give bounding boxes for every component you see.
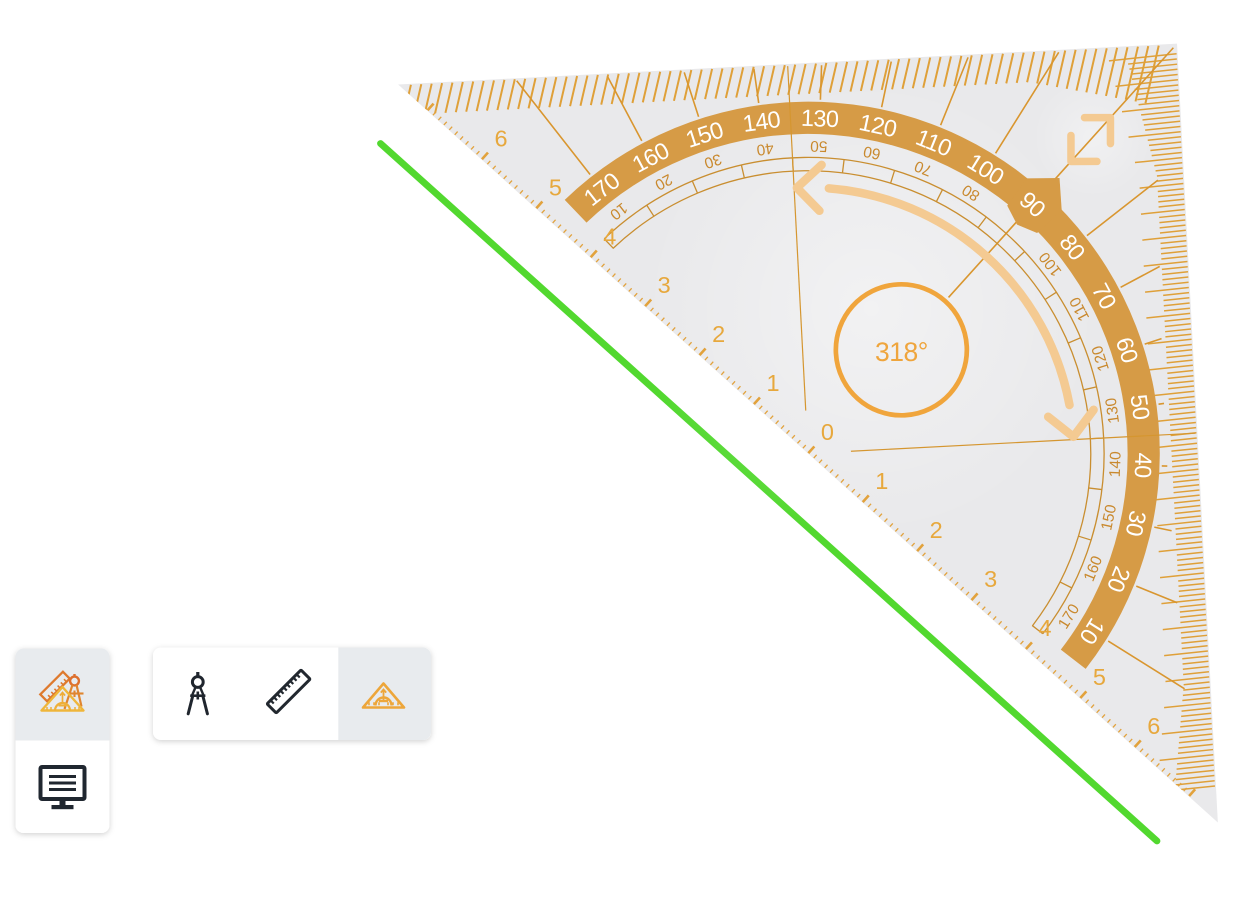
svg-text:2: 2 xyxy=(712,321,725,347)
svg-text:6: 6 xyxy=(1147,713,1160,739)
svg-text:0: 0 xyxy=(821,419,834,445)
svg-text:140: 140 xyxy=(741,106,782,137)
svg-text:3: 3 xyxy=(658,272,671,298)
svg-text:50: 50 xyxy=(1125,393,1154,422)
svg-text:4: 4 xyxy=(1038,615,1051,641)
svg-text:140: 140 xyxy=(1107,451,1125,478)
svg-text:1: 1 xyxy=(875,468,888,494)
svg-text:4: 4 xyxy=(603,223,616,249)
svg-text:5: 5 xyxy=(1093,664,1106,690)
svg-text:2: 2 xyxy=(930,517,943,543)
svg-text:318°: 318° xyxy=(875,337,928,367)
svg-text:130: 130 xyxy=(1103,396,1123,424)
svg-text:130: 130 xyxy=(801,105,840,132)
svg-text:50: 50 xyxy=(810,137,828,155)
svg-text:40: 40 xyxy=(1130,452,1157,478)
svg-text:1: 1 xyxy=(766,370,779,396)
svg-text:3: 3 xyxy=(984,566,997,592)
svg-text:6: 6 xyxy=(494,125,507,151)
svg-text:5: 5 xyxy=(549,174,562,200)
svg-text:40: 40 xyxy=(755,139,775,158)
